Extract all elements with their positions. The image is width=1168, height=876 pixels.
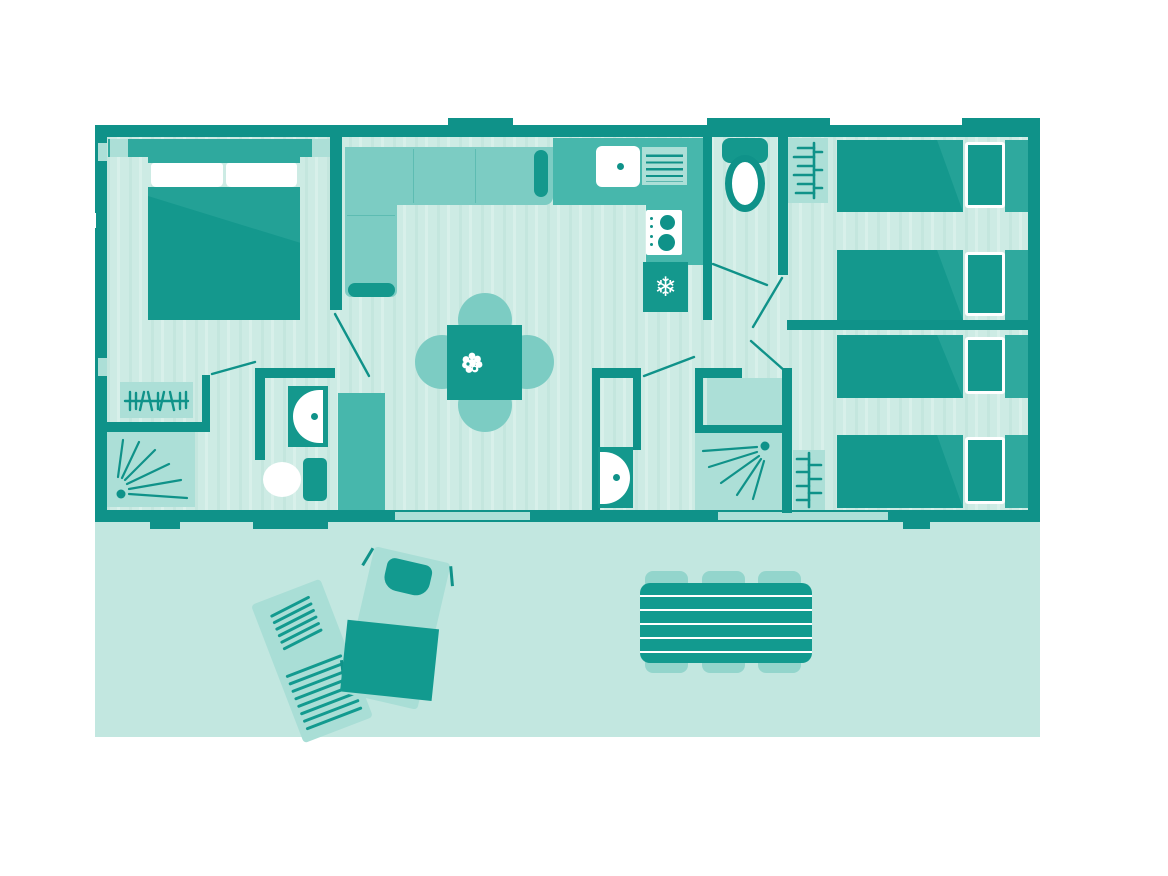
sofa-seam-3 bbox=[347, 215, 395, 216]
wall-bath2-right bbox=[782, 368, 792, 513]
canvas: ❄ bbox=[0, 0, 1168, 876]
bath2-shelf bbox=[707, 378, 782, 425]
pillow-1 bbox=[965, 142, 1005, 208]
coat-rack-icon bbox=[788, 138, 828, 203]
sofa-armrest-bottom bbox=[348, 283, 395, 297]
wall-bedroom-divider bbox=[787, 320, 1040, 330]
lounger-towel bbox=[340, 620, 439, 701]
double-bed-headboard bbox=[148, 140, 300, 163]
picnic-table bbox=[640, 583, 812, 663]
pillow-2 bbox=[965, 252, 1005, 316]
wall-master-bedroom bbox=[330, 137, 342, 310]
wall-tab-top-3 bbox=[962, 118, 1040, 126]
stove bbox=[646, 210, 682, 255]
floor-plan: ❄ bbox=[95, 125, 1040, 737]
left-wall-notch bbox=[90, 213, 96, 228]
toilet-wc-bowl bbox=[725, 155, 765, 212]
wall-tab-bottom-3 bbox=[903, 522, 930, 529]
towel-ladder bbox=[793, 450, 825, 510]
stove-knob-1 bbox=[650, 217, 653, 220]
pillow-3 bbox=[965, 337, 1005, 394]
window-post-2 bbox=[312, 139, 330, 157]
double-bed bbox=[148, 140, 300, 320]
toilet-master-bowl bbox=[263, 462, 301, 497]
single-bed-2 bbox=[837, 250, 1028, 320]
stove-knob-2 bbox=[650, 225, 653, 228]
fridge: ❄ bbox=[643, 262, 688, 312]
cabinet-living bbox=[338, 393, 385, 510]
terrace bbox=[95, 522, 1040, 737]
left-wall-window-1 bbox=[98, 143, 107, 161]
terrace-sliding-door bbox=[395, 512, 530, 520]
flower-icon bbox=[460, 351, 484, 375]
shower-2 bbox=[695, 433, 782, 510]
single-bed-3 bbox=[837, 335, 1028, 398]
pillow-4 bbox=[965, 437, 1005, 504]
double-bed-pillow-right bbox=[226, 163, 297, 187]
single-bed-1 bbox=[837, 140, 1028, 212]
sofa-seam-1 bbox=[413, 149, 414, 203]
wall-tab-top-2 bbox=[707, 118, 830, 126]
stove-knob-4 bbox=[650, 243, 653, 246]
sofa-armrest-right bbox=[534, 150, 548, 197]
stove-burner-1 bbox=[660, 215, 675, 230]
toilet-master-tank bbox=[303, 458, 327, 501]
double-bed-pillow-left bbox=[151, 163, 223, 187]
wall-tab-bottom-2 bbox=[253, 522, 328, 529]
wall-wc-right bbox=[778, 137, 788, 275]
wall-master-bath-left bbox=[255, 368, 265, 460]
washbasin-master-drain bbox=[311, 413, 318, 420]
wall-wardrobe-horiz bbox=[107, 422, 210, 432]
shower-spray-icon bbox=[107, 432, 195, 507]
sofa-left-seat bbox=[345, 147, 397, 297]
lounger-pillow bbox=[382, 557, 434, 599]
left-wall-window-2 bbox=[98, 358, 107, 376]
kitchen-drainer bbox=[642, 147, 687, 185]
wall-bath2-sink-right bbox=[633, 368, 641, 450]
washbasin-2-drain bbox=[613, 474, 620, 481]
double-bed-body bbox=[148, 187, 300, 320]
wall-tab-top-1 bbox=[448, 118, 513, 126]
terrace-sliding-door-2 bbox=[718, 512, 888, 520]
sofa-seam-2 bbox=[475, 149, 476, 203]
picnic-table-slats bbox=[640, 583, 812, 663]
shower-spray-icon-2 bbox=[695, 433, 782, 510]
coat-rack bbox=[788, 138, 828, 203]
double-bed-sheet-fold bbox=[148, 187, 300, 277]
wall-bath2-mid bbox=[695, 368, 703, 433]
wall-kitchen bbox=[703, 137, 712, 320]
kitchen-sink-drain bbox=[617, 163, 624, 170]
towel-ladder-icon bbox=[793, 450, 825, 510]
clothes-rail-icon bbox=[120, 382, 193, 418]
wall-master-bath-top bbox=[255, 368, 335, 378]
single-bed-4 bbox=[837, 435, 1028, 508]
dining-table bbox=[447, 325, 522, 400]
kitchen-drainer-grooves bbox=[646, 150, 683, 182]
wall-bath2-shower-top bbox=[695, 425, 790, 433]
wall-tab-bottom-1 bbox=[150, 522, 180, 529]
shower-master bbox=[107, 432, 195, 507]
window-post-1 bbox=[110, 139, 128, 157]
stove-burner-2 bbox=[658, 234, 675, 251]
snowflake-icon: ❄ bbox=[654, 274, 677, 301]
wardrobe bbox=[120, 382, 193, 418]
stove-knob-3 bbox=[650, 235, 653, 238]
